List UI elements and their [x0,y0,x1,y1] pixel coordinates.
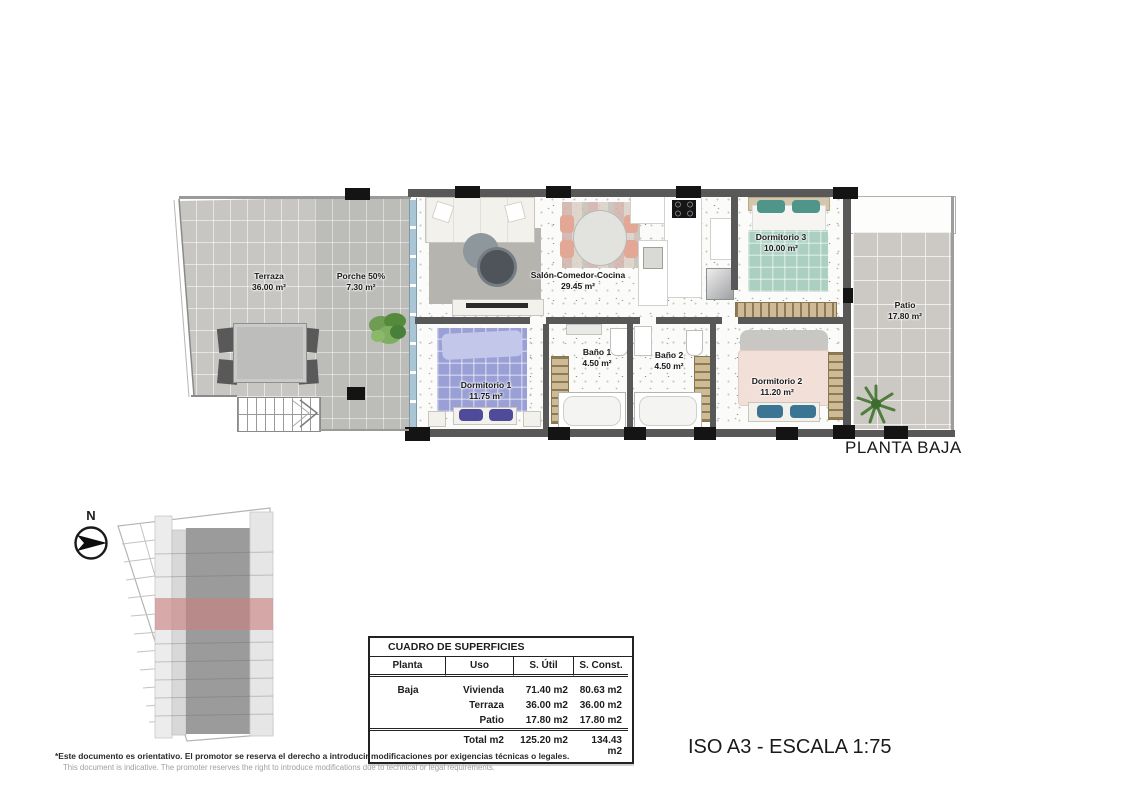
column-header: S. Const. [574,657,628,677]
cell-uso: Vivienda [446,677,514,698]
surface-table-header: Planta Uso S. Útil S. Const. [370,657,632,677]
room-name: Terraza [229,271,309,282]
room-area: 7.30 m² [321,282,401,293]
cell-util: 17.80 m2 [514,713,574,728]
cell-uso: Patio [446,713,514,728]
room-area: 11.20 m² [727,387,827,398]
site-highlight-band [155,598,273,630]
north-arrow-icon [72,524,112,564]
room-name: Baño 1 [562,347,632,358]
cell-planta [370,713,446,728]
scale-label: ISO A3 - ESCALA 1:75 [688,736,891,759]
cell-uso: Terraza [446,698,514,713]
surface-table: CUADRO DE SUPERFICIES Planta Uso S. Útil… [368,636,634,764]
room-label-patio: Patio 17.80 m² [865,300,945,321]
surface-table-title: CUADRO DE SUPERFICIES [370,638,632,657]
cell-util: 36.00 m2 [514,698,574,713]
room-area: 4.50 m² [634,361,704,372]
room-area: 10.00 m² [731,243,831,254]
room-name: Porche 50% [321,271,401,282]
cell-const: 36.00 m2 [574,698,628,713]
column-header: Planta [370,657,446,677]
total-const: 134.43 m2 [574,728,628,762]
cell-const: 80.63 m2 [574,677,628,698]
cell-util: 71.40 m2 [514,677,574,698]
column-header: S. Útil [514,657,574,677]
disclaimer-english: This document is indicative. The promote… [63,763,495,772]
room-area: 11.75 m² [436,391,536,402]
floor-plan-sheet: Terraza 36.00 m² Porche 50% 7.30 m² Saló… [0,0,1132,800]
floor-plan: Terraza 36.00 m² Porche 50% 7.30 m² Saló… [0,0,1132,470]
room-area: 29.45 m² [518,281,638,292]
cell-planta [370,698,446,713]
room-name: Baño 2 [634,350,704,361]
column-header: Uso [446,657,514,677]
room-name: Dormitorio 3 [731,232,831,243]
room-area: 4.50 m² [562,358,632,369]
disclaimer-spanish: *Este documento es orientativo. El promo… [55,751,569,761]
room-label-bano1: Baño 1 4.50 m² [562,347,632,368]
cell-const: 17.80 m2 [574,713,628,728]
cell-planta: Baja [370,677,446,698]
room-area: 17.80 m² [865,311,945,322]
room-label-bano2: Baño 2 4.50 m² [634,350,704,371]
room-label-dormitorio1: Dormitorio 1 11.75 m² [436,380,536,401]
room-name: Dormitorio 2 [727,376,827,387]
room-label-salon: Salón-Comedor-Cocina 29.45 m² [518,270,638,291]
room-name: Patio [865,300,945,311]
north-label: N [78,508,104,523]
room-name: Salón-Comedor-Cocina [518,270,638,281]
room-label-dormitorio3: Dormitorio 3 10.00 m² [731,232,831,253]
room-label-dormitorio2: Dormitorio 2 11.20 m² [727,376,827,397]
plan-title: PLANTA BAJA [845,438,965,458]
room-label-porche: Porche 50% 7.30 m² [321,271,401,292]
surface-table-body: Baja Vivienda 71.40 m2 80.63 m2 Terraza … [370,677,632,728]
site-location-plan [110,502,280,747]
room-area: 36.00 m² [229,282,309,293]
room-name: Dormitorio 1 [436,380,536,391]
room-label-terraza: Terraza 36.00 m² [229,271,309,292]
